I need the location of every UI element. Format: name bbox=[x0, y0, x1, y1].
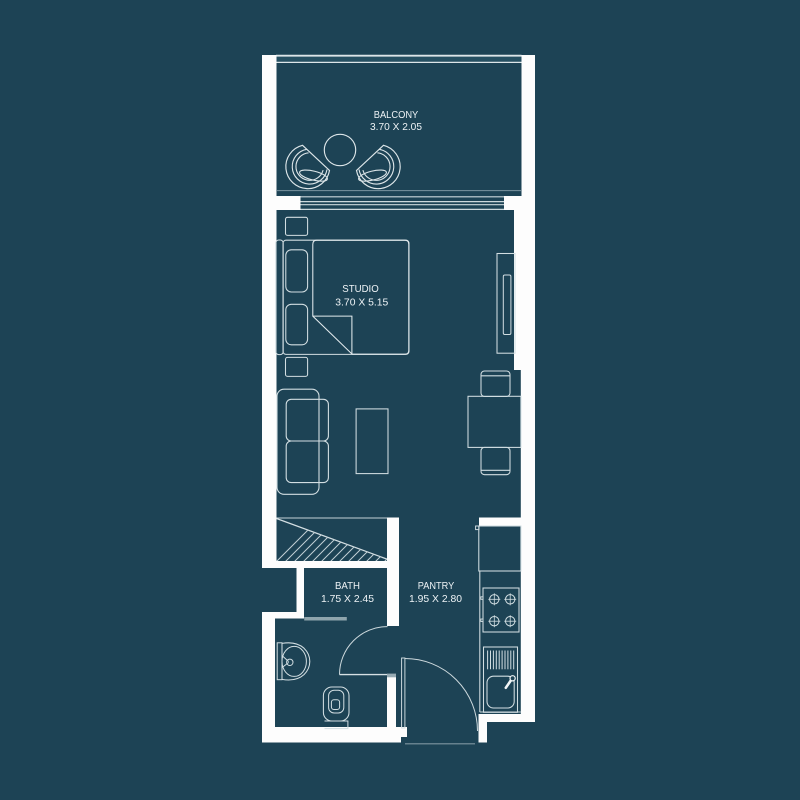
svg-text:STUDIO: STUDIO bbox=[342, 284, 379, 295]
svg-text:PANTRY: PANTRY bbox=[418, 581, 455, 592]
svg-text:1.75 X 2.45: 1.75 X 2.45 bbox=[321, 593, 374, 605]
svg-text:3.70 X 2.05: 3.70 X 2.05 bbox=[370, 121, 422, 133]
svg-text:BALCONY: BALCONY bbox=[374, 110, 419, 121]
svg-text:BATH: BATH bbox=[335, 581, 360, 592]
svg-text:3.70 X 5.15: 3.70 X 5.15 bbox=[335, 296, 388, 308]
svg-text:1.95 X 2.80: 1.95 X 2.80 bbox=[409, 593, 462, 605]
